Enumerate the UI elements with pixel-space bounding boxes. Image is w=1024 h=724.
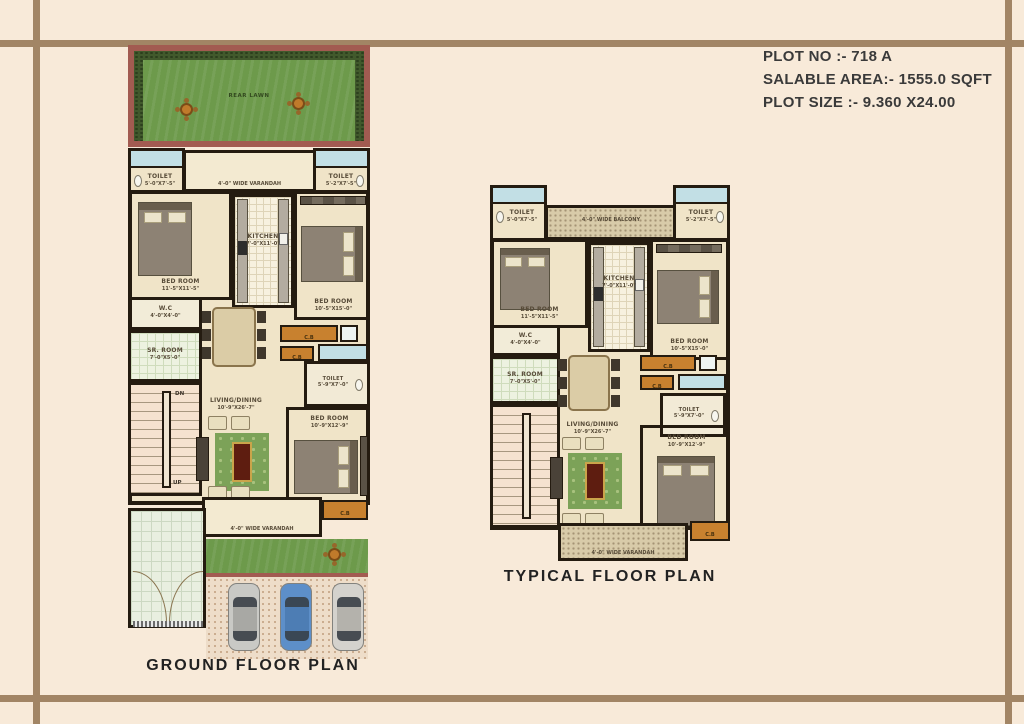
frame-line-left bbox=[33, 0, 40, 724]
dining-chairs bbox=[202, 311, 211, 363]
varandah-bottom-label: 4'-0" WIDE VARANDAH bbox=[205, 526, 319, 532]
car bbox=[332, 583, 364, 651]
cupboard: C.B bbox=[640, 355, 696, 371]
frame-line-bottom bbox=[0, 695, 1024, 702]
bedroom-3: BED ROOM10'-9"X12'-9" bbox=[640, 425, 730, 527]
side-unit bbox=[196, 437, 209, 481]
shaft bbox=[699, 355, 717, 371]
pillow bbox=[168, 212, 186, 223]
toilet-label: TOILET5'-0"X7'-5" bbox=[501, 209, 543, 223]
pillow bbox=[690, 465, 709, 476]
rear-lawn: REAR LAWN bbox=[128, 45, 370, 147]
bed bbox=[138, 202, 192, 276]
frame-line-right bbox=[1005, 0, 1012, 724]
cupboard: C.B bbox=[640, 375, 674, 390]
stair-rail bbox=[162, 391, 171, 488]
balcony-top: 4'-0" WIDE BALCONY bbox=[545, 205, 677, 240]
pillow bbox=[338, 469, 349, 488]
bedroom-2-label: BED ROOM10'-5"X15'-0" bbox=[653, 338, 726, 352]
living-dining-label: LIVING/DINING10'-9"X26'-7" bbox=[176, 397, 296, 411]
sofa bbox=[231, 416, 250, 430]
sofa bbox=[208, 416, 227, 430]
shower-area bbox=[316, 151, 367, 168]
bedroom-3-label: BED ROOM10'-9"X12'-9" bbox=[643, 434, 730, 448]
bed bbox=[657, 270, 719, 324]
servant-room-label: SR. ROOM7'-0"X5'-0" bbox=[131, 347, 199, 361]
shower-area bbox=[131, 151, 182, 168]
servant-room: SR. ROOM7'-0"X5'-0" bbox=[490, 356, 560, 404]
pillow bbox=[699, 276, 710, 295]
shower-area bbox=[318, 344, 368, 361]
carpet bbox=[215, 433, 269, 491]
wardrobe bbox=[656, 244, 722, 253]
shower-area bbox=[678, 374, 726, 390]
bedroom-3-label: BED ROOM10'-9"X12'-9" bbox=[289, 415, 370, 429]
carpet bbox=[568, 453, 622, 509]
pillow bbox=[699, 299, 710, 318]
varandah-bottom-label: 4'-0" WIDE VARANDAH bbox=[561, 550, 685, 556]
wc: W.C4'-0"X4'-0" bbox=[494, 328, 560, 356]
salable-area: SALABLE AREA:- 1555.0 SQFT bbox=[763, 68, 992, 91]
bed bbox=[657, 456, 715, 526]
headboard bbox=[711, 271, 718, 323]
car bbox=[228, 583, 260, 651]
dining-chairs bbox=[611, 359, 620, 407]
toilet-label: TOILET5'-2"X7'-5" bbox=[320, 173, 362, 187]
sofa bbox=[562, 437, 581, 450]
kitchen: KITCHEN7'-0"X11'-0" bbox=[232, 194, 294, 308]
stair-up-label: UP bbox=[173, 480, 182, 486]
servant-room-label: SR. ROOM7'-0"X5'-0" bbox=[493, 371, 557, 385]
garden-table bbox=[180, 103, 193, 116]
pillow bbox=[505, 257, 522, 267]
pillow bbox=[338, 446, 349, 465]
tv-unit bbox=[232, 442, 252, 482]
bed bbox=[294, 440, 358, 494]
toilet-top-left: TOILET5'-0"X7'-5" bbox=[490, 185, 547, 241]
dining-table bbox=[568, 355, 610, 411]
bedroom-1-label: BED ROOM11'-5"X11'-5" bbox=[494, 306, 585, 320]
pillow bbox=[663, 465, 682, 476]
headboard bbox=[501, 249, 549, 255]
bedroom-1: BED ROOM11'-5"X11'-5" bbox=[494, 242, 588, 328]
cupboard: C.B bbox=[690, 521, 730, 541]
sofa bbox=[585, 437, 604, 450]
cupboard: C.B bbox=[280, 346, 314, 361]
kitchen-label: KITCHEN7'-0"X11'-0" bbox=[235, 233, 291, 247]
varandah-top-label: 4'-0" WIDE VARANDAH bbox=[186, 181, 313, 187]
wc-label: W.C4'-0"X4'-0" bbox=[494, 332, 557, 346]
driveway bbox=[206, 577, 368, 659]
threshold bbox=[133, 621, 203, 627]
pillow bbox=[144, 212, 162, 223]
dining-chairs bbox=[257, 311, 266, 363]
pillow bbox=[343, 256, 354, 276]
wardrobe bbox=[360, 436, 368, 496]
bedroom-1: BED ROOM11'-5"X11'-5" bbox=[132, 194, 232, 300]
front-lawn bbox=[206, 539, 368, 577]
bedroom-2-label: BED ROOM10'-5"X15'-0" bbox=[297, 298, 370, 312]
varandah-bottom: 4'-0" WIDE VARANDAH bbox=[202, 497, 322, 537]
servant-room: SR. ROOM7'-0"X5'-0" bbox=[128, 330, 202, 382]
stair-rail bbox=[522, 413, 531, 519]
pillow bbox=[528, 257, 545, 267]
wardrobe bbox=[300, 196, 366, 205]
plot-size: PLOT SIZE :- 9.360 X24.00 bbox=[763, 91, 992, 114]
balcony-label: 4'-0" WIDE BALCONY bbox=[548, 217, 674, 223]
kitchen-label: KITCHEN7'-0"X11'-0" bbox=[591, 275, 647, 289]
bedroom-2: BED ROOM10'-5"X15'-0" bbox=[294, 194, 370, 320]
headboard bbox=[658, 457, 714, 463]
stove-icon bbox=[594, 287, 603, 301]
toilet-mid-label: TOILET5'-9"X7'-0" bbox=[665, 407, 713, 420]
toilet-label: TOILET5'-2"X7'-5" bbox=[680, 209, 722, 223]
plot-info: PLOT NO :- 718 A SALABLE AREA:- 1555.0 S… bbox=[763, 45, 992, 114]
wc-label: W.C4'-0"X4'-0" bbox=[132, 305, 199, 319]
toilet-mid: TOILET5'-9"X7'-0" bbox=[304, 361, 370, 407]
shaft bbox=[340, 325, 358, 342]
living-dining-label: LIVING/DINING10'-9"X26'-7" bbox=[535, 421, 650, 435]
headboard bbox=[139, 203, 191, 210]
garage-door-swing bbox=[169, 571, 203, 623]
cupboard: C.B bbox=[280, 325, 338, 342]
typical-floor-plan: 4'-0" WIDE BALCONY TOILET5'-0"X7'-5" TOI… bbox=[490, 185, 730, 595]
car-glass bbox=[337, 597, 361, 641]
garage-door-swing bbox=[133, 571, 167, 623]
toilet-top-right: TOILET5'-2"X7'-5" bbox=[673, 185, 730, 241]
shower-area bbox=[493, 188, 544, 204]
kitchen-counter bbox=[278, 199, 289, 303]
garage bbox=[128, 508, 206, 628]
bedroom-3: BED ROOM10'-9"X12'-9" bbox=[286, 407, 370, 505]
bed bbox=[500, 248, 550, 310]
varandah-top: 4'-0" WIDE VARANDAH bbox=[183, 150, 316, 192]
bed bbox=[301, 226, 363, 282]
cupboard: C.B bbox=[322, 500, 368, 520]
garden-table bbox=[328, 548, 341, 561]
rear-lawn-label: REAR LAWN bbox=[134, 93, 364, 100]
kitchen-counter bbox=[634, 247, 645, 347]
bedroom-1-label: BED ROOM11'-5"X11'-5" bbox=[132, 278, 229, 292]
pillow bbox=[343, 232, 354, 252]
ground-plan-title: GROUND FLOOR PLAN bbox=[128, 657, 378, 675]
kitchen: KITCHEN7'-0"X11'-0" bbox=[588, 242, 650, 352]
hedge-top bbox=[134, 51, 364, 60]
varandah-bottom: 4'-0" WIDE VARANDAH bbox=[558, 523, 688, 561]
typical-plan-title: TYPICAL FLOOR PLAN bbox=[490, 568, 730, 586]
ground-floor-plan: REAR LAWN 4'-0" WIDE VARANDAH TOILET5'-0… bbox=[128, 45, 378, 685]
tv-unit bbox=[585, 462, 605, 500]
shower-area bbox=[676, 188, 727, 204]
dining-chairs bbox=[558, 359, 567, 407]
side-unit bbox=[550, 457, 563, 499]
car-glass bbox=[233, 597, 257, 641]
wc: W.C4'-0"X4'-0" bbox=[132, 300, 202, 330]
toilet-label: TOILET5'-0"X7'-5" bbox=[139, 173, 181, 187]
car-glass bbox=[285, 597, 309, 641]
plot-no: PLOT NO :- 718 A bbox=[763, 45, 992, 68]
headboard bbox=[350, 441, 357, 493]
toilet-mid-label: TOILET5'-9"X7'-0" bbox=[309, 376, 357, 389]
headboard bbox=[355, 227, 362, 281]
car bbox=[280, 583, 312, 651]
bedroom-2: BED ROOM10'-5"X15'-0" bbox=[650, 242, 726, 360]
dining-table bbox=[212, 307, 256, 367]
